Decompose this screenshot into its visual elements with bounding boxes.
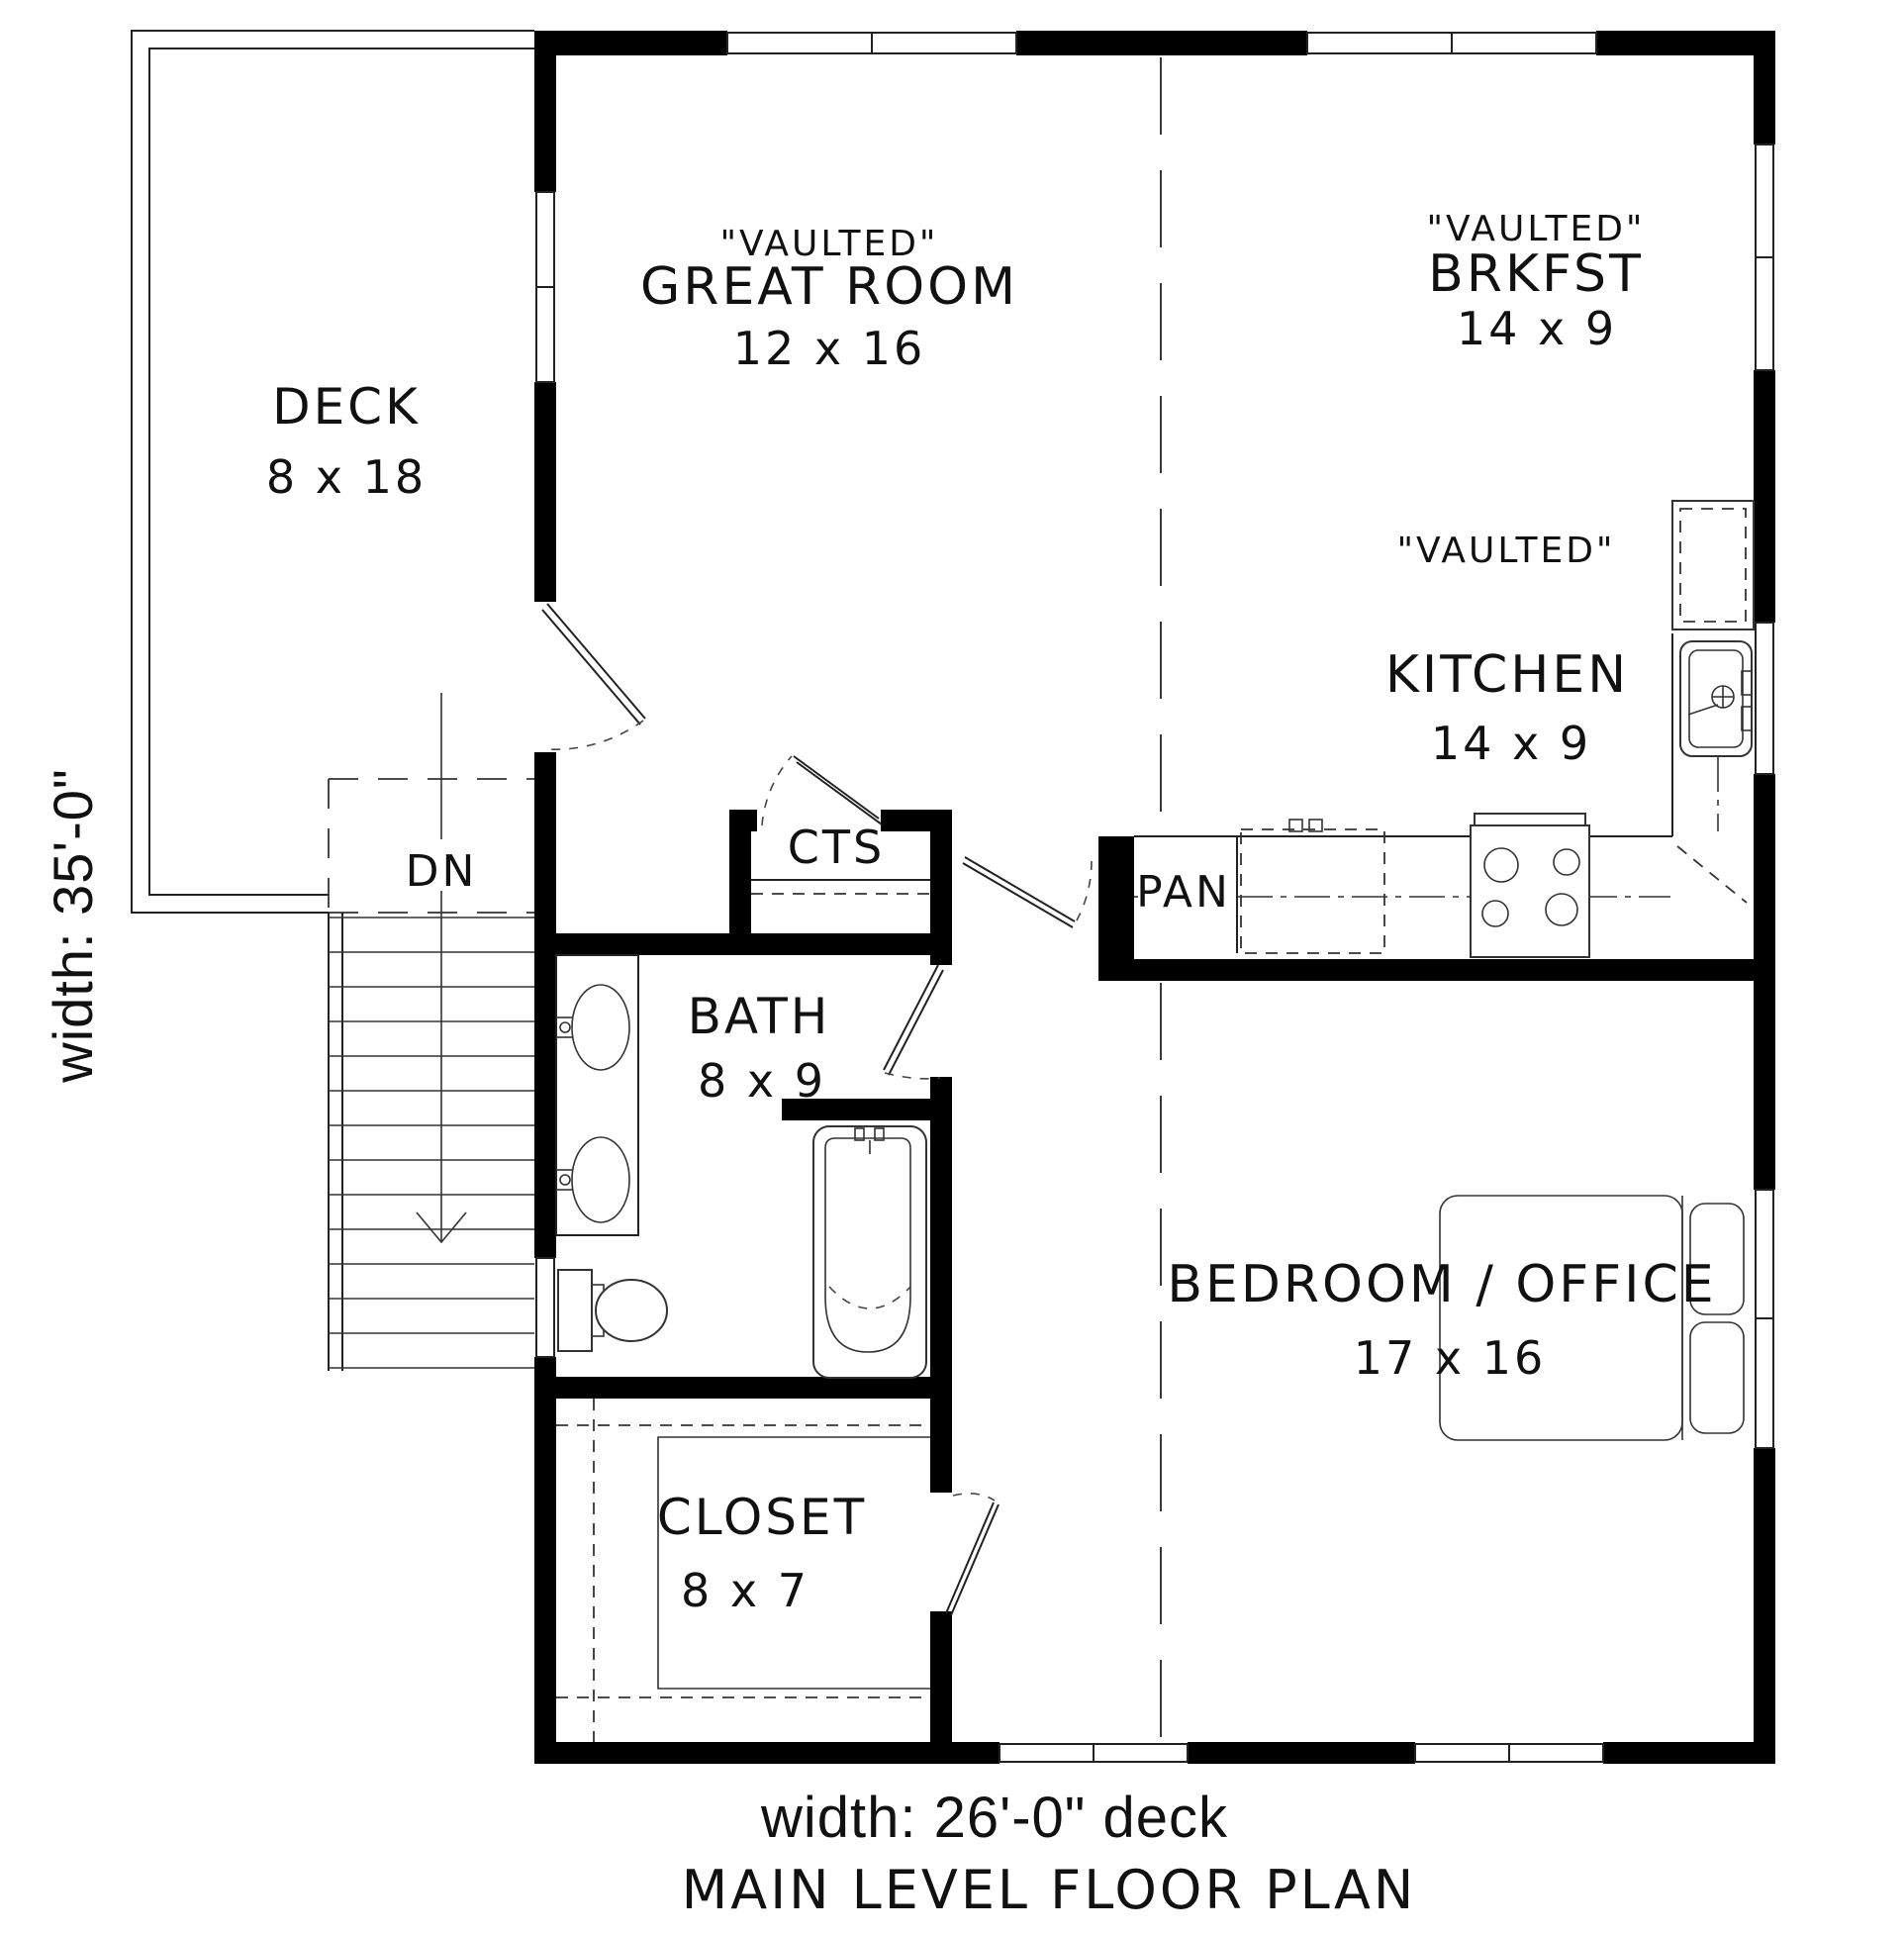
bedroom-office-dims: 17 x 16 xyxy=(1354,1331,1547,1385)
stairs xyxy=(329,693,534,1371)
bath-label: BATH xyxy=(688,988,831,1045)
great-room-label: GREAT ROOM xyxy=(640,257,1018,317)
dn-label: DN xyxy=(406,846,478,897)
window-bottom-1 xyxy=(1000,1744,1188,1762)
pillows xyxy=(1690,1204,1744,1433)
kitchen-sink xyxy=(1680,641,1752,756)
bedroom-office-label: BEDROOM / OFFICE xyxy=(1167,1255,1716,1314)
faucet-icon xyxy=(556,1017,572,1190)
floor-plan-page: DECK 8 x 18 "VAULTED" GREAT ROOM 12 x 16… xyxy=(0,0,1904,1936)
kitchen-note: "VAULTED" xyxy=(1397,531,1616,571)
closet-door xyxy=(946,1494,999,1615)
cts-label: CTS xyxy=(788,821,885,874)
cts-shelf xyxy=(751,880,930,894)
dishwasher xyxy=(1241,820,1384,953)
bath-dims: 8 x 9 xyxy=(698,1054,826,1108)
bottom-width-dimension: width: 26'-0" deck xyxy=(760,1786,1228,1850)
window-top-2 xyxy=(1307,33,1596,53)
window-top-1 xyxy=(727,33,1016,53)
bed xyxy=(1440,1196,1744,1440)
plan-title: MAIN LEVEL FLOOR PLAN xyxy=(682,1859,1417,1921)
vanity xyxy=(556,955,638,1235)
stove xyxy=(1471,814,1589,957)
side-width-dimension: width: 35'-0" xyxy=(42,768,104,1084)
window-left-bath xyxy=(536,1258,554,1357)
window-right-brkfst xyxy=(1756,145,1773,370)
window-right-bedroom xyxy=(1756,1190,1773,1448)
window-left-greatroom xyxy=(536,192,554,382)
bathtub xyxy=(813,1126,926,1378)
floor-plan-drawing: DECK 8 x 18 "VAULTED" GREAT ROOM 12 x 16… xyxy=(0,0,1904,1936)
brkfst-dims: 14 x 9 xyxy=(1457,302,1617,355)
brkfst-label: BRKFST xyxy=(1428,244,1644,304)
deck-door xyxy=(542,604,645,749)
kitchen-hall-door xyxy=(963,857,1092,927)
refrigerator xyxy=(1672,501,1754,629)
closet-dims: 8 x 7 xyxy=(681,1564,809,1617)
great-room-dims: 12 x 16 xyxy=(733,322,926,375)
window-bottom-2 xyxy=(1415,1744,1603,1762)
cts-door xyxy=(762,756,882,825)
stair-treads xyxy=(329,918,534,1368)
bath-door xyxy=(884,965,943,1079)
brkfst-note: "VAULTED" xyxy=(1427,209,1646,249)
pan-label: PAN xyxy=(1136,867,1231,918)
closet-label: CLOSET xyxy=(657,1489,867,1546)
kitchen-label: KITCHEN xyxy=(1385,645,1629,705)
deck-label: DECK xyxy=(272,378,421,436)
kitchen-dims: 14 x 9 xyxy=(1431,717,1591,770)
toilet xyxy=(558,1270,667,1351)
deck-dims: 8 x 18 xyxy=(266,450,427,504)
window-right-kitchen xyxy=(1756,623,1773,774)
